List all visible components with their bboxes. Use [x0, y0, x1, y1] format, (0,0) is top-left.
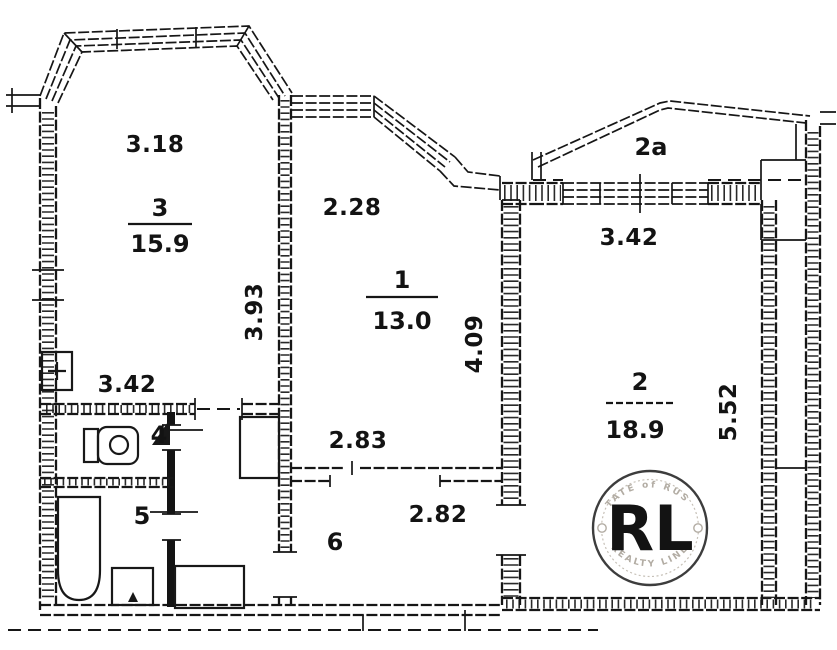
toilet-fixture	[84, 427, 138, 464]
floor-plan-page: 3.18 3.93 3.42 2.28 2.83 4.09 3.42 5.52 …	[0, 0, 837, 650]
balcony-label: 2a	[635, 133, 668, 161]
exterior-walls	[6, 88, 836, 631]
dim-room1-bottom: 2.83	[329, 428, 388, 454]
dim-room1-depth: 4.09	[462, 315, 488, 374]
dim-room1-top: 2.28	[323, 195, 382, 221]
fixtures	[42, 352, 279, 608]
watermark-monogram: RL	[606, 492, 693, 565]
balcony-outline	[532, 101, 810, 180]
bathtub-fixture	[58, 497, 100, 600]
room3-number: 3	[152, 194, 169, 222]
sink-fixture	[112, 568, 153, 605]
watermark-right-dot	[694, 524, 702, 532]
bath-label: 5	[134, 502, 151, 530]
room2-area: 18.9	[605, 416, 664, 444]
dim-room3-depth: 3.93	[242, 283, 268, 342]
closet-corridor	[240, 417, 279, 478]
room1-window-band	[292, 96, 500, 200]
dim-room2-width: 3.42	[600, 225, 659, 251]
room1-area: 13.0	[372, 307, 431, 335]
room1-label: 1 13.0	[366, 266, 438, 335]
dim-room2-depth: 5.52	[716, 383, 742, 442]
room1-number: 1	[394, 266, 411, 294]
hall-label: 6	[327, 528, 344, 556]
room3-area: 15.9	[130, 230, 189, 258]
dim-room3-bottom: 3.42	[98, 372, 157, 398]
dim-hall-width: 2.82	[409, 502, 468, 528]
watermark-left-dot	[598, 524, 606, 532]
watermark-badge: ESTATE of RUSSIA REALTY LINE RL	[0, 0, 712, 590]
room2-number: 2	[632, 368, 649, 396]
dim-room3-width: 3.18	[126, 132, 185, 158]
wc-label: 4	[151, 421, 168, 449]
room2-label: 2 18.9	[605, 368, 676, 444]
floor-plan-canvas: 3.18 3.93 3.42 2.28 2.83 4.09 3.42 5.52 …	[0, 0, 837, 650]
closet-hall	[175, 566, 244, 608]
room3-label: 3 15.9	[128, 194, 192, 258]
room3-bay-window	[40, 26, 292, 103]
